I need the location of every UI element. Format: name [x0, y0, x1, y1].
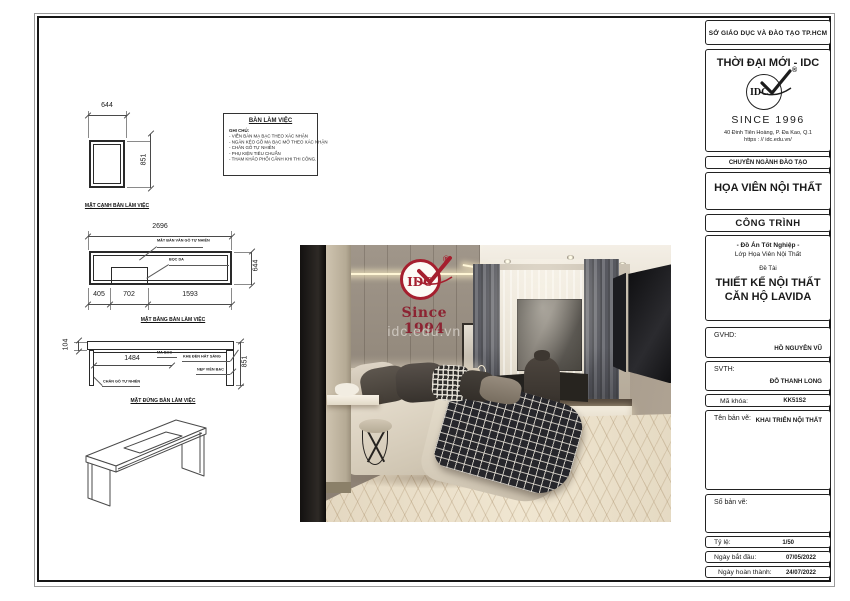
extension-line	[231, 231, 232, 250]
vanity-ledge	[327, 395, 380, 405]
scale-box: Tỷ lệ: 1/50	[705, 536, 831, 548]
dim-104: 104	[63, 333, 70, 357]
elev-callout-trim: NẸP VIỀN BẠC	[197, 368, 224, 372]
note-item: - VIỀN BÀN MẠ BẠC THEO XÁC NHẬN	[229, 134, 319, 140]
topic-line-1: THIẾT KẾ NỘI THẤT	[706, 276, 830, 290]
gvhd-value: HỒ NGUYÊN VŨ	[774, 345, 822, 352]
drawing-number-box: Số bản vẽ:	[705, 494, 831, 533]
dim-702: 702	[110, 291, 148, 298]
dim-line	[88, 236, 232, 237]
class-code-box: Mã khóa: KK51S2	[705, 394, 831, 407]
gvhd-label: GVHD:	[714, 332, 736, 339]
dim-851-elev: 851	[242, 348, 249, 376]
start-date-value: 07/05/2022	[786, 552, 816, 564]
leader-line	[102, 386, 140, 387]
address-line1: 40 Đinh Tiên Hoàng, P. Đa Kao, Q.1	[706, 130, 830, 137]
tv-side-panel	[613, 273, 626, 373]
watermark-url: idc.edu.vn	[382, 323, 467, 339]
wardrobe-dark	[300, 245, 326, 522]
stool-seat	[359, 419, 392, 433]
dim-line	[150, 134, 151, 188]
topic-line-2: CĂN HỘ LAVIDA	[706, 290, 830, 304]
dim-1484: 1484	[112, 355, 152, 362]
project-subtitle-1: - Đồ Án Tốt Nghiệp -	[706, 242, 830, 249]
dim-644-top: 644	[93, 102, 121, 109]
training-header: CHUYÊN NGÀNH ĐÀO TẠO	[706, 157, 830, 170]
leader-line	[169, 265, 229, 266]
extension-line	[110, 288, 111, 310]
drawing-sheet: BÀN LÀM VIỆC GHI CHÚ: - VIỀN BÀN MẠ BẠC …	[0, 0, 850, 601]
render-photo: IDC ® Since 1994 idc.edu.vn	[300, 245, 671, 522]
elev-callout-woodleg: CHÂN GỖ TỰ NHIÊN	[103, 380, 140, 384]
svth-label: SVTH:	[714, 366, 735, 373]
dim-405: 405	[88, 291, 110, 298]
notes-list: GHI CHÚ: - VIỀN BÀN MẠ BẠC THEO XÁC NHẬN…	[229, 128, 319, 163]
elevation-tabletop	[87, 341, 234, 350]
department-title: SỞ GIÁO DỤC VÀ ĐÀO TẠO TP.HCM	[706, 21, 830, 46]
dim-851-side: 851	[141, 146, 148, 174]
dim-1593: 1593	[148, 291, 232, 298]
major-box: HỌA VIÊN NỘI THẤT	[705, 172, 831, 210]
ceiling-spotlight	[567, 255, 574, 260]
plan-step	[111, 267, 148, 285]
extension-line	[234, 284, 252, 285]
note-item: - THAM KHẢO PHỐI CẢNH KHI THI CÔNG.	[229, 157, 319, 163]
desk-perspective-sketch	[80, 408, 232, 510]
elevation-label: MẶT ĐỨNG BÀN LÀM VIỆC	[108, 398, 218, 404]
idc-logo: IDC ®	[744, 71, 804, 113]
notes-title: BÀN LÀM VIỆC	[224, 118, 317, 124]
extension-line	[148, 288, 149, 310]
start-date-box: Ngày bắt đầu: 07/05/2022	[705, 551, 831, 563]
leader-line	[157, 357, 177, 358]
project-header: CÔNG TRÌNH	[706, 215, 830, 233]
logo-check-icon	[760, 69, 792, 99]
dim-line	[94, 365, 172, 366]
leader-line	[196, 374, 230, 375]
drawing-name-label: Tên bản vẽ:	[714, 415, 751, 422]
dim-line	[78, 341, 79, 351]
plan-view-label: MẶT BẰNG BÀN LÀM VIỆC	[118, 317, 228, 323]
elev-callout-silver: MẠ BẠC	[157, 351, 172, 355]
extension-line	[127, 141, 151, 142]
side-view-label: MẶT CẠNH BÀN LÀM VIỆC	[62, 203, 172, 209]
brand-title: THỜI ĐẠI MỚI - IDC	[706, 57, 830, 69]
scale-label: Tỷ lệ:	[714, 537, 731, 549]
desk-monitor	[558, 372, 588, 402]
ceiling-spotlight	[504, 259, 511, 264]
address-line2: https : // idc.edu.vn/	[706, 137, 830, 144]
drawing-name-value: KHAI TRIỂN NỘI THẤT	[756, 417, 822, 424]
svth-box: SVTH: ĐỖ THANH LONG	[705, 361, 831, 391]
dim-line	[88, 115, 127, 116]
wall-column	[326, 245, 351, 493]
extension-line	[88, 288, 89, 310]
finish-date-box: Ngày hoàn thành: 24/07/2022	[705, 566, 831, 578]
gvhd-box: GVHD: HỒ NGUYÊN VŨ	[705, 327, 831, 358]
tv-screen	[628, 264, 671, 383]
start-date-label: Ngày bắt đầu:	[714, 552, 756, 564]
leader-line	[182, 361, 230, 362]
drawing-name-box: Tên bản vẽ: KHAI TRIỂN NỘI THẤT	[705, 410, 831, 490]
class-code-label: Mã khóa:	[720, 395, 748, 408]
brand-box: THỜI ĐẠI MỚI - IDC IDC ® SINCE 1996 40 Đ…	[705, 49, 831, 152]
scale-value: 1/50	[782, 537, 794, 549]
project-subtitle-2: Lớp Họa Viên Nội Thất	[706, 251, 830, 258]
since-text: SINCE 1996	[706, 114, 830, 126]
major-title: HỌA VIÊN NỘI THẤT	[706, 182, 830, 194]
plan-callout-leather: BỌC DA	[169, 258, 184, 262]
department-box: SỞ GIÁO DỤC VÀ ĐÀO TẠO TP.HCM	[705, 20, 831, 45]
training-header-box: CHUYÊN NGÀNH ĐÀO TẠO	[705, 156, 831, 169]
dim-2696: 2696	[140, 223, 180, 230]
project-content-box: - Đồ Án Tốt Nghiệp - Lớp Họa Viên Nội Th…	[705, 235, 831, 321]
svth-value: ĐỖ THANH LONG	[770, 378, 822, 385]
side-view-panel	[89, 140, 125, 188]
topic-label: Đề Tài	[706, 266, 830, 272]
finish-date-value: 24/07/2022	[786, 567, 816, 579]
extension-line	[231, 288, 232, 310]
drawing-number-label: Số bản vẽ:	[714, 499, 747, 506]
elev-callout-lightslot: KHE ĐÈN HẮT SÁNG	[183, 355, 221, 359]
class-code-value: KK51S2	[783, 395, 806, 408]
registered-mark: ®	[792, 67, 797, 74]
finish-date-label: Ngày hoàn thành:	[718, 567, 772, 579]
leader-line	[157, 247, 203, 248]
watermark-registered-mark: ®	[443, 254, 450, 264]
notes-box: BÀN LÀM VIỆC GHI CHÚ: - VIỀN BÀN MẠ BẠC …	[223, 113, 318, 176]
project-header-box: CÔNG TRÌNH	[705, 214, 831, 232]
dim-644-right: 644	[253, 252, 260, 280]
plan-callout-wood: MẶT BÀN VÂN GỖ TỰ NHIÊN	[157, 239, 210, 243]
extension-line	[127, 187, 151, 188]
